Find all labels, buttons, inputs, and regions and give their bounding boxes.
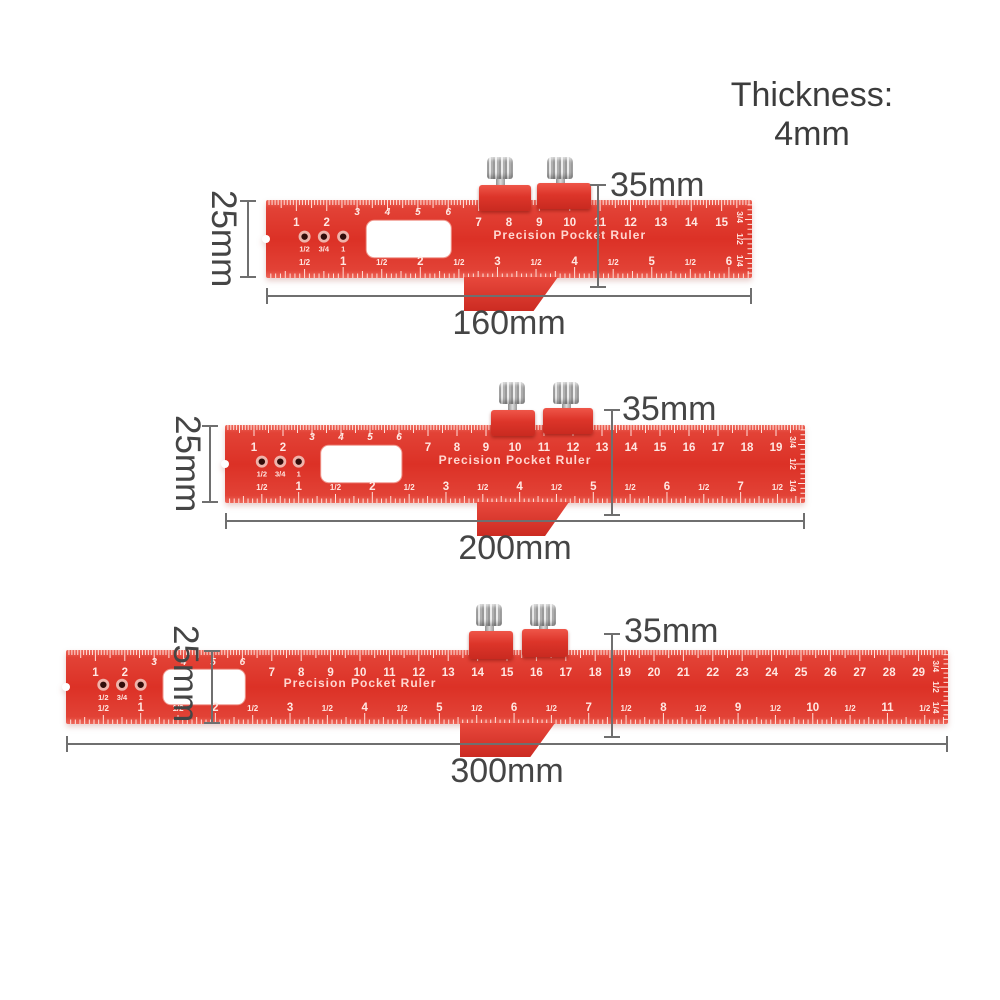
svg-text:7: 7 [737, 481, 743, 493]
svg-text:1/2: 1/2 [931, 681, 941, 693]
stop-height-dim-line-cap [604, 736, 620, 738]
svg-text:1/2: 1/2 [299, 245, 309, 254]
svg-text:6: 6 [240, 657, 246, 668]
svg-text:1/2: 1/2 [330, 483, 342, 492]
svg-text:5: 5 [436, 702, 443, 714]
svg-text:1/2: 1/2 [256, 483, 268, 492]
svg-text:1/4: 1/4 [788, 480, 798, 492]
length-dim-label: 300mm [407, 752, 607, 791]
svg-text:1/2: 1/2 [608, 258, 620, 267]
svg-text:1/2: 1/2 [98, 704, 110, 713]
svg-text:28: 28 [883, 667, 896, 679]
svg-text:17: 17 [712, 442, 725, 454]
svg-text:4: 4 [362, 702, 369, 714]
svg-text:2: 2 [122, 667, 128, 679]
stop-height-dim-label: 35mm [622, 390, 716, 429]
svg-text:1/2: 1/2 [98, 693, 108, 702]
svg-text:Precision Pocket Ruler: Precision Pocket Ruler [493, 228, 646, 242]
stop-height-dim-label: 35mm [624, 612, 718, 651]
svg-text:1/2: 1/2 [396, 704, 408, 713]
svg-text:3/4: 3/4 [319, 245, 330, 254]
stop-height-dim-line [597, 184, 599, 288]
svg-text:4: 4 [337, 432, 344, 443]
svg-text:2: 2 [212, 702, 218, 714]
svg-text:2: 2 [417, 256, 423, 268]
ruler-body-ruler-200mm: 123456789101112131415161718191/23/41Prec… [225, 425, 805, 503]
svg-text:15: 15 [654, 442, 667, 454]
svg-text:1/2: 1/2 [685, 258, 697, 267]
svg-text:1: 1 [92, 667, 99, 679]
length-dim-line-cap [750, 288, 752, 304]
svg-text:7: 7 [425, 442, 431, 454]
svg-text:1/2: 1/2 [772, 483, 784, 492]
svg-text:1/4: 1/4 [735, 255, 745, 267]
svg-text:3/4: 3/4 [735, 211, 745, 223]
svg-text:5: 5 [649, 256, 656, 268]
stop-screw [530, 604, 556, 626]
svg-text:15: 15 [501, 667, 514, 679]
svg-text:1/2: 1/2 [770, 704, 782, 713]
height-dim-line [209, 425, 211, 503]
stop-screw [547, 157, 573, 179]
svg-text:6: 6 [511, 702, 517, 714]
stop-screw [499, 382, 525, 404]
svg-text:1/2: 1/2 [735, 233, 745, 245]
length-dim-line-cap [225, 513, 227, 529]
svg-text:1: 1 [297, 470, 301, 479]
length-dim-line-cap [803, 513, 805, 529]
svg-text:5: 5 [415, 207, 421, 218]
svg-text:3: 3 [443, 481, 449, 493]
svg-text:3: 3 [354, 207, 360, 218]
height-dim-label: 25mm [165, 616, 205, 732]
svg-text:18: 18 [589, 667, 602, 679]
stop-block [543, 408, 593, 434]
svg-text:Precision Pocket Ruler: Precision Pocket Ruler [284, 676, 437, 690]
stop-height-dim-line-cap [590, 286, 606, 288]
svg-text:6: 6 [445, 207, 451, 218]
svg-text:14: 14 [625, 442, 638, 454]
svg-text:1: 1 [251, 442, 258, 454]
svg-text:19: 19 [618, 667, 631, 679]
height-dim-line-cap [204, 650, 220, 652]
height-dim-line [211, 650, 213, 724]
height-dim-line [247, 200, 249, 278]
svg-text:5: 5 [367, 432, 373, 443]
length-dim-line [66, 743, 948, 745]
svg-text:1/2: 1/2 [695, 704, 707, 713]
stop-screw [487, 157, 513, 179]
svg-text:1/2: 1/2 [257, 470, 267, 479]
svg-text:23: 23 [736, 667, 749, 679]
svg-text:1: 1 [340, 256, 347, 268]
length-dim-line-cap [946, 736, 948, 752]
svg-text:1: 1 [137, 702, 144, 714]
svg-text:26: 26 [824, 667, 837, 679]
svg-text:13: 13 [442, 667, 455, 679]
stop-height-dim-label: 35mm [610, 166, 704, 205]
svg-text:14: 14 [685, 217, 698, 229]
svg-text:4: 4 [384, 207, 391, 218]
svg-text:25: 25 [795, 667, 808, 679]
svg-text:3/4: 3/4 [117, 693, 128, 702]
svg-text:27: 27 [853, 667, 866, 679]
svg-text:1: 1 [139, 693, 143, 702]
svg-text:6: 6 [726, 256, 732, 268]
svg-text:Precision Pocket Ruler: Precision Pocket Ruler [439, 453, 592, 467]
length-dim-label: 200mm [415, 529, 615, 568]
stop-block [522, 629, 568, 657]
svg-text:5: 5 [590, 481, 597, 493]
stop-screw [553, 382, 579, 404]
stop-height-dim-line [611, 409, 613, 516]
svg-text:8: 8 [660, 702, 667, 714]
svg-text:9: 9 [735, 702, 741, 714]
svg-text:3/4: 3/4 [275, 470, 286, 479]
svg-text:1/2: 1/2 [698, 483, 710, 492]
svg-text:1/2: 1/2 [845, 704, 857, 713]
svg-text:22: 22 [706, 667, 719, 679]
svg-text:1/2: 1/2 [299, 258, 311, 267]
svg-text:17: 17 [559, 667, 572, 679]
svg-text:20: 20 [648, 667, 661, 679]
stop-height-dim-line-cap [604, 409, 620, 411]
length-dim-label: 160mm [409, 304, 609, 343]
svg-text:16: 16 [530, 667, 543, 679]
svg-text:4: 4 [571, 256, 578, 268]
svg-text:29: 29 [912, 667, 925, 679]
svg-text:1/2: 1/2 [621, 704, 633, 713]
svg-text:3: 3 [287, 702, 293, 714]
svg-text:1/2: 1/2 [788, 458, 798, 470]
svg-text:19: 19 [770, 442, 783, 454]
svg-text:1/2: 1/2 [376, 258, 388, 267]
svg-text:24: 24 [765, 667, 778, 679]
svg-text:13: 13 [654, 217, 667, 229]
stop-block [537, 183, 591, 209]
svg-text:1/2: 1/2 [919, 704, 931, 713]
svg-text:10: 10 [806, 702, 819, 714]
svg-text:15: 15 [715, 217, 728, 229]
svg-text:1/2: 1/2 [530, 258, 542, 267]
svg-text:3: 3 [151, 657, 157, 668]
svg-text:6: 6 [396, 432, 402, 443]
svg-text:3: 3 [309, 432, 315, 443]
length-dim-line [225, 520, 805, 522]
stop-block [469, 631, 513, 659]
svg-text:3: 3 [494, 256, 500, 268]
svg-text:7: 7 [586, 702, 592, 714]
svg-text:16: 16 [683, 442, 696, 454]
svg-text:14: 14 [471, 667, 484, 679]
length-dim-line-cap [66, 736, 68, 752]
svg-text:1/2: 1/2 [546, 704, 558, 713]
svg-text:3/4: 3/4 [931, 660, 941, 672]
svg-text:7: 7 [475, 217, 481, 229]
height-dim-label: 25mm [203, 181, 243, 297]
stop-height-dim-line-cap [604, 514, 620, 516]
svg-text:18: 18 [741, 442, 754, 454]
stop-height-dim-line [611, 633, 613, 738]
svg-text:21: 21 [677, 667, 690, 679]
height-dim-line-cap [204, 722, 220, 724]
svg-text:3/4: 3/4 [788, 436, 798, 448]
stop-screw [476, 604, 502, 626]
svg-text:2: 2 [324, 217, 330, 229]
svg-text:4: 4 [516, 481, 523, 493]
svg-text:1: 1 [293, 217, 300, 229]
stop-block [491, 410, 535, 436]
stop-height-dim-line-cap [590, 184, 606, 186]
svg-text:2: 2 [280, 442, 286, 454]
length-dim-line [266, 295, 752, 297]
svg-text:1: 1 [341, 245, 345, 254]
svg-text:11: 11 [881, 702, 894, 714]
svg-text:1/4: 1/4 [931, 702, 941, 714]
svg-text:13: 13 [596, 442, 609, 454]
ruler-body-ruler-160mm: 1234567891011121314151/23/41Precision Po… [266, 200, 752, 278]
product-dimension-diagram: Thickness: 4mm 1234567891011121314151/23… [0, 0, 1000, 1000]
svg-text:2: 2 [369, 481, 375, 493]
svg-text:1/2: 1/2 [625, 483, 637, 492]
height-dim-label: 25mm [167, 406, 207, 522]
svg-text:1/2: 1/2 [404, 483, 416, 492]
svg-text:1/2: 1/2 [453, 258, 465, 267]
svg-text:6: 6 [664, 481, 670, 493]
svg-text:1/2: 1/2 [322, 704, 334, 713]
svg-text:1: 1 [295, 481, 302, 493]
svg-text:1/2: 1/2 [247, 704, 259, 713]
stop-block [479, 185, 531, 211]
stop-height-dim-line-cap [604, 633, 620, 635]
svg-text:1/2: 1/2 [471, 704, 483, 713]
svg-text:1/2: 1/2 [477, 483, 489, 492]
svg-text:7: 7 [269, 667, 275, 679]
length-dim-line-cap [266, 288, 268, 304]
svg-text:1/2: 1/2 [551, 483, 563, 492]
